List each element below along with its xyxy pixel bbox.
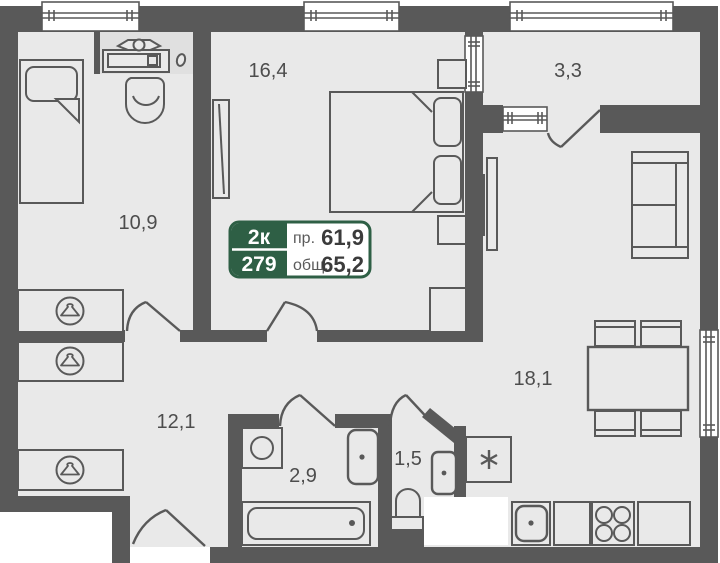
wall-left	[0, 6, 18, 512]
window-living-right	[700, 330, 718, 437]
window-central-wall	[465, 36, 483, 92]
window-bedroom1	[42, 2, 139, 31]
fridge	[466, 437, 511, 482]
wall-bathroom-left	[228, 414, 242, 547]
floorplan-svg: 10,9 16,4 3,3 12,1 2,9 1,5 18,1 2к 279 п…	[0, 0, 720, 563]
room-label-bedroom1: 10,9	[119, 212, 158, 234]
single-bed	[20, 60, 83, 203]
living-area-label: пр.	[293, 230, 315, 247]
room-label-balcony: 3,3	[554, 60, 582, 82]
wc-sink	[432, 452, 456, 494]
window-bedroom2	[304, 2, 399, 31]
wall-bedrooms-divider	[193, 32, 211, 342]
wall-hall-north-2	[180, 330, 267, 342]
room-label-living: 18,1	[514, 368, 553, 390]
nightstand-top	[438, 60, 466, 88]
kitchen-niche	[466, 497, 508, 545]
room-label-bedroom2: 16,4	[249, 60, 288, 82]
wall-bath-wc-divider	[378, 414, 392, 547]
unit-rooms-label: 2к	[248, 226, 271, 249]
outside-bottom-left	[0, 512, 112, 563]
dining-table	[588, 347, 688, 410]
room-label-bathroom: 2,9	[289, 465, 317, 487]
wardrobe-hall-1	[18, 342, 123, 381]
wall-balcony-2	[600, 105, 700, 133]
bathroom-sink	[348, 430, 378, 484]
wardrobe-hall-2	[18, 450, 123, 490]
duct-shaft	[424, 497, 466, 545]
washing-machine	[242, 428, 282, 468]
cabinet-bedroom2	[430, 288, 466, 332]
window-balcony	[510, 2, 673, 31]
wall-bottom-left-step	[0, 496, 130, 512]
room-label-wc: 1,5	[394, 448, 422, 470]
kitchen-counter	[512, 502, 690, 545]
room-label-hallway: 12,1	[157, 411, 196, 433]
double-bed	[330, 92, 463, 212]
kitchen-sink	[516, 506, 547, 541]
unit-card: 2к 279 пр. 61,9 общ. 65,2	[230, 222, 370, 277]
unit-number: 279	[241, 253, 276, 276]
wall-balcony-1	[483, 105, 503, 133]
desk-chair	[126, 78, 164, 123]
entry-threshold	[130, 547, 210, 563]
nightstand-bottom	[438, 216, 466, 244]
wall-right	[700, 6, 718, 563]
floorplan: 10,9 16,4 3,3 12,1 2,9 1,5 18,1 2к 279 п…	[0, 0, 720, 563]
living-area-value: 61,9	[321, 225, 364, 250]
bathtub	[242, 502, 370, 545]
sofa	[632, 152, 688, 258]
window-living-balcony	[503, 107, 547, 131]
wardrobe-bedroom1	[18, 290, 123, 332]
desk-nook-wall	[94, 32, 100, 74]
tall-cabinet	[213, 100, 229, 198]
total-area-value: 65,2	[321, 252, 364, 277]
